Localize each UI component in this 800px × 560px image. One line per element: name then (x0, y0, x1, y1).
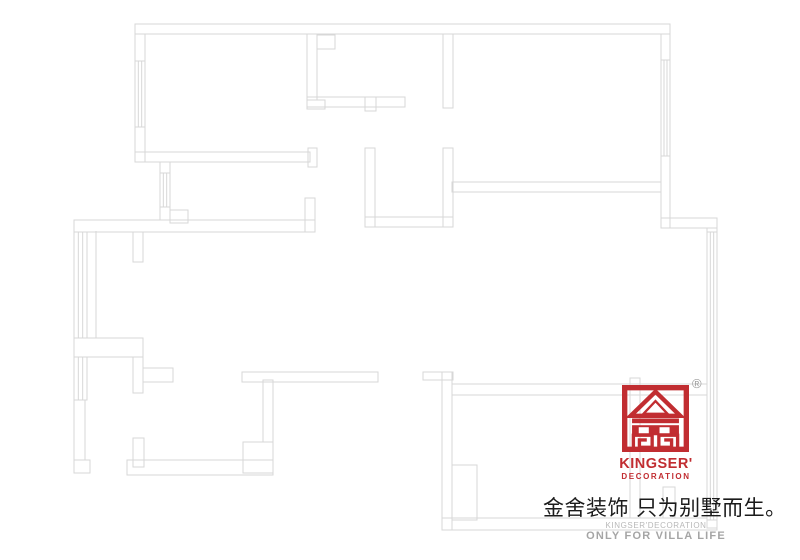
wall-segment (452, 465, 477, 520)
wall-segment (74, 220, 315, 232)
wall-segment (74, 460, 90, 473)
window-symbol (135, 61, 145, 127)
page-root: ® KINGSER' DECORATION 金舍装饰 只为别墅而生。 KINGS… (0, 0, 800, 560)
wall-segment (307, 100, 325, 109)
wall-segment (305, 198, 315, 232)
kingser-logo-icon (622, 385, 689, 452)
wall-segment (307, 97, 405, 107)
wall-segment (263, 380, 273, 442)
wall-segment (170, 210, 188, 223)
wall-segment (135, 152, 310, 162)
wall-segment (365, 97, 376, 111)
wall-segment (452, 182, 661, 192)
footer-brand-block: KINGSER'DECORATION ONLY FOR VILLA LIFE (566, 521, 746, 543)
wall-segment (661, 218, 717, 228)
wall-segment (135, 24, 670, 34)
wall-segment (443, 34, 453, 108)
wall-segment (143, 368, 173, 382)
wall-segment (308, 148, 317, 167)
wall-segment (442, 372, 452, 530)
wall-segment (243, 442, 273, 473)
wall-segment (423, 372, 453, 380)
brand-slogan: 金舍装饰 只为别墅而生。 (543, 492, 787, 522)
wall-segment (74, 338, 143, 357)
logo-subtitle: DECORATION (618, 472, 694, 481)
wall-segment (242, 372, 378, 382)
window-symbol (707, 232, 717, 520)
wall-segment (74, 400, 85, 460)
logo-wordmark: KINGSER' (618, 456, 694, 472)
window-symbol (74, 357, 87, 400)
wall-segment (307, 34, 317, 100)
wall-segment (133, 357, 143, 393)
wall-segment (133, 438, 144, 467)
window-symbol (661, 60, 670, 156)
wall-segment (317, 35, 335, 49)
wall-segment (365, 148, 375, 227)
window-symbol (74, 232, 87, 338)
wall-segment (133, 232, 143, 262)
window-symbol (160, 173, 170, 207)
wall-segment (365, 217, 453, 227)
footer-brand-text: KINGSER'DECORATION (566, 521, 746, 530)
footer-tagline: ONLY FOR VILLA LIFE (566, 530, 746, 543)
registered-trademark-icon: ® (692, 377, 702, 390)
